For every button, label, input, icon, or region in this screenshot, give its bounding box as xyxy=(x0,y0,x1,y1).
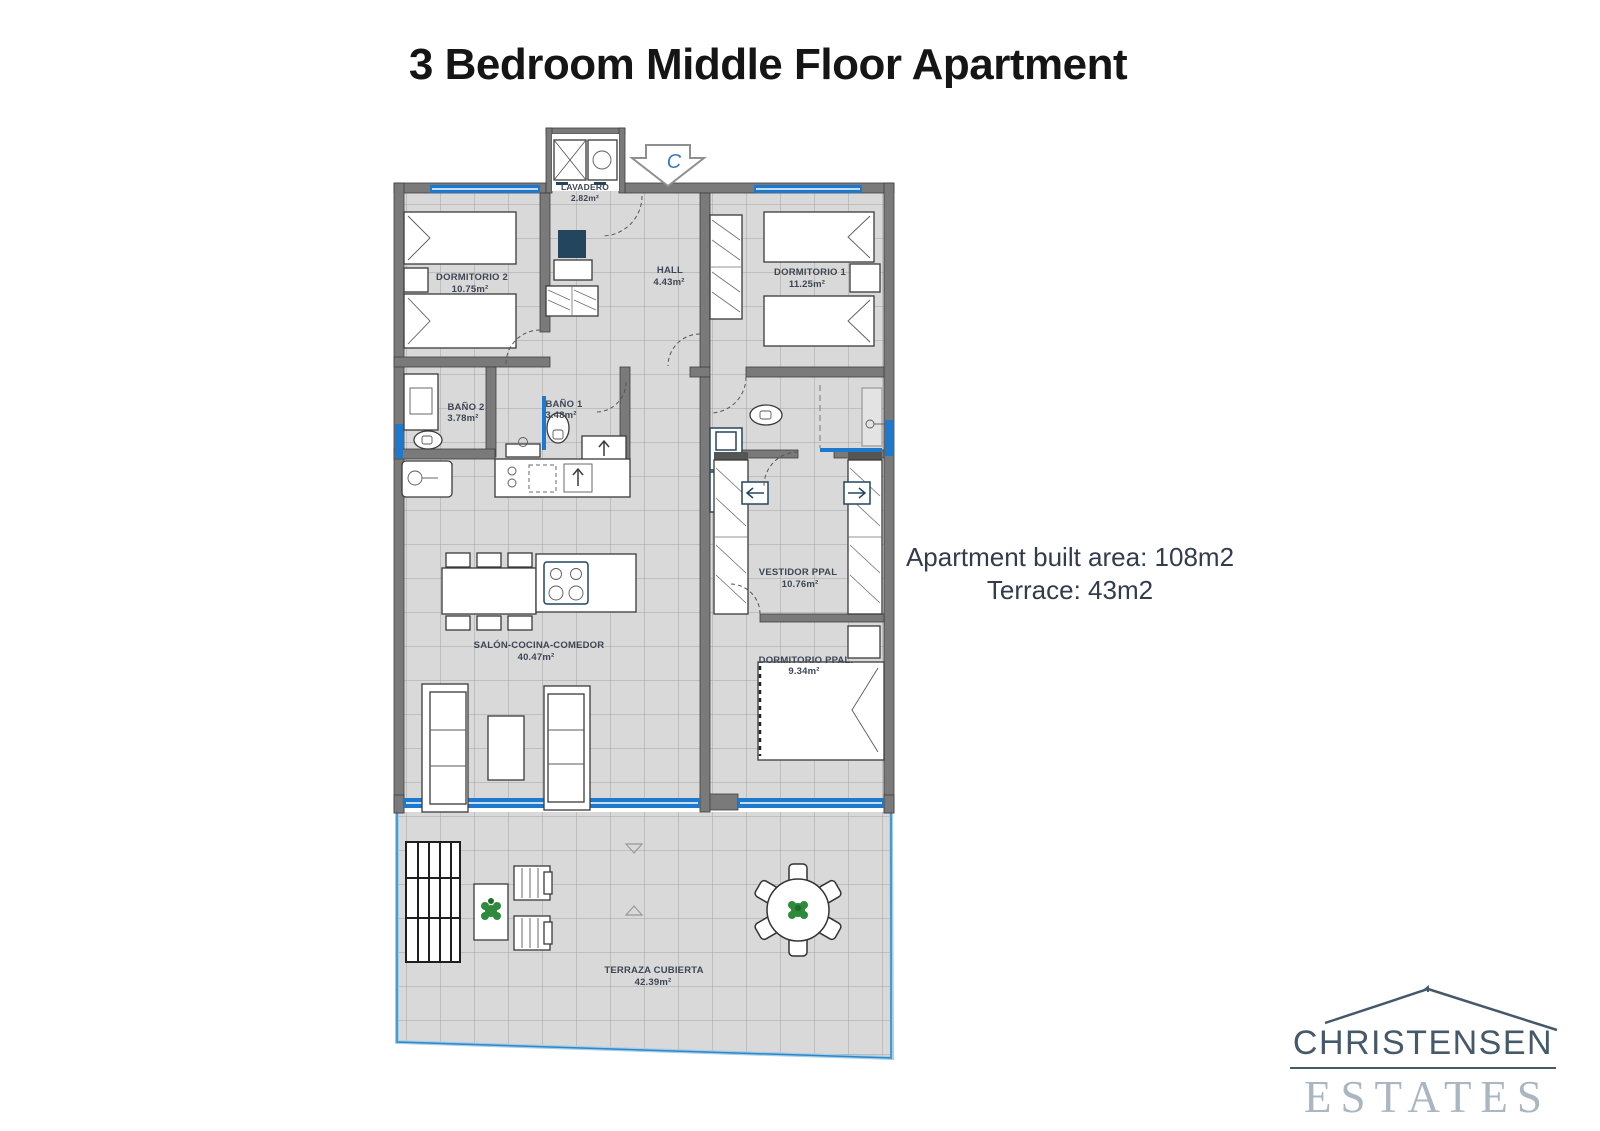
floor-plan: C xyxy=(388,118,902,1070)
nightstand-icon xyxy=(404,268,428,292)
floor-plan-drawing: C xyxy=(388,118,902,1070)
bed-icon xyxy=(404,212,516,264)
shower-icon xyxy=(582,436,626,460)
drawer-icon xyxy=(844,482,870,504)
room-label: HALL xyxy=(657,265,683,276)
wardrobe-icon xyxy=(710,215,742,319)
room-area: 4.43m² xyxy=(653,277,684,288)
room-area: 3.78m² xyxy=(447,413,478,424)
sink-unit-icon xyxy=(554,140,586,180)
coffee-table-icon xyxy=(488,716,524,780)
hall-closet-icon xyxy=(546,286,598,316)
plant-icon xyxy=(788,901,808,919)
compass-letter: C xyxy=(667,151,682,173)
bed-icon xyxy=(764,296,874,346)
sink-icon xyxy=(404,374,438,430)
room-label: BAÑO 1 xyxy=(545,399,583,410)
room-label: DORMITORIO 2 xyxy=(436,272,508,283)
stove-icon xyxy=(544,562,588,604)
built-area-text: Apartment built area: 108m2 xyxy=(860,541,1280,574)
room-area: 2.82m² xyxy=(571,193,599,203)
terrace-area-text: Terrace: 43m2 xyxy=(860,574,1280,607)
kitchen-counter xyxy=(495,459,630,497)
logo-subname: ESTATES xyxy=(1280,1071,1566,1123)
bed-icon xyxy=(404,294,516,348)
utility-sink-icon xyxy=(402,461,452,497)
washer-icon xyxy=(558,230,586,258)
room-label: DORMITORIO 1 xyxy=(774,267,846,278)
kitchen-island-icon xyxy=(536,554,636,612)
room-area: 40.47m² xyxy=(518,652,555,663)
room-area: 42.39m² xyxy=(635,977,672,988)
room-area: 3.48m² xyxy=(545,410,576,421)
room-area: 10.75m² xyxy=(452,284,489,295)
shower-icon xyxy=(862,388,884,446)
agency-logo: CHRISTENSEN ESTATES xyxy=(1280,976,1566,1126)
nightstand-icon xyxy=(848,626,880,658)
pergola-icon xyxy=(406,842,460,962)
compass-icon: C xyxy=(632,145,704,186)
room-label: TERRAZA CUBIERTA xyxy=(604,965,703,976)
wardrobe-icon xyxy=(714,452,748,614)
bed-icon xyxy=(764,212,874,262)
plant-table-icon xyxy=(474,884,508,940)
room-label: LAVADERO xyxy=(561,182,609,192)
room-label: DORMITORIO PPAL. xyxy=(759,655,854,666)
room-area: 9.34m² xyxy=(788,666,819,677)
area-info: Apartment built area: 108m2 Terrace: 43m… xyxy=(860,541,1280,607)
wardrobe-icon xyxy=(848,452,882,614)
room-label: BAÑO 2 xyxy=(447,402,484,413)
washing-machine-icon xyxy=(588,140,617,180)
nightstand-icon xyxy=(850,264,880,292)
bed-icon xyxy=(758,662,884,760)
toilet-icon xyxy=(750,405,782,425)
room-area: 11.25m² xyxy=(789,279,825,290)
page-title: 3 Bedroom Middle Floor Apartment xyxy=(0,40,1536,90)
terrace-chair-icon xyxy=(514,866,552,900)
terrace-floor xyxy=(396,812,892,1058)
toilet-icon xyxy=(414,431,442,449)
room-label: VESTIDOR PPAL xyxy=(759,567,837,578)
logo-divider xyxy=(1290,1067,1556,1069)
sofa-icon xyxy=(422,684,468,812)
sofa-icon xyxy=(544,686,590,810)
terrace-chair-icon xyxy=(514,916,552,950)
logo-name: CHRISTENSEN xyxy=(1280,1024,1566,1063)
dining-table-icon xyxy=(442,553,536,630)
room-label: SALÓN-COCINA-COMEDOR xyxy=(474,639,605,651)
room-area: 10.76m² xyxy=(782,579,819,590)
